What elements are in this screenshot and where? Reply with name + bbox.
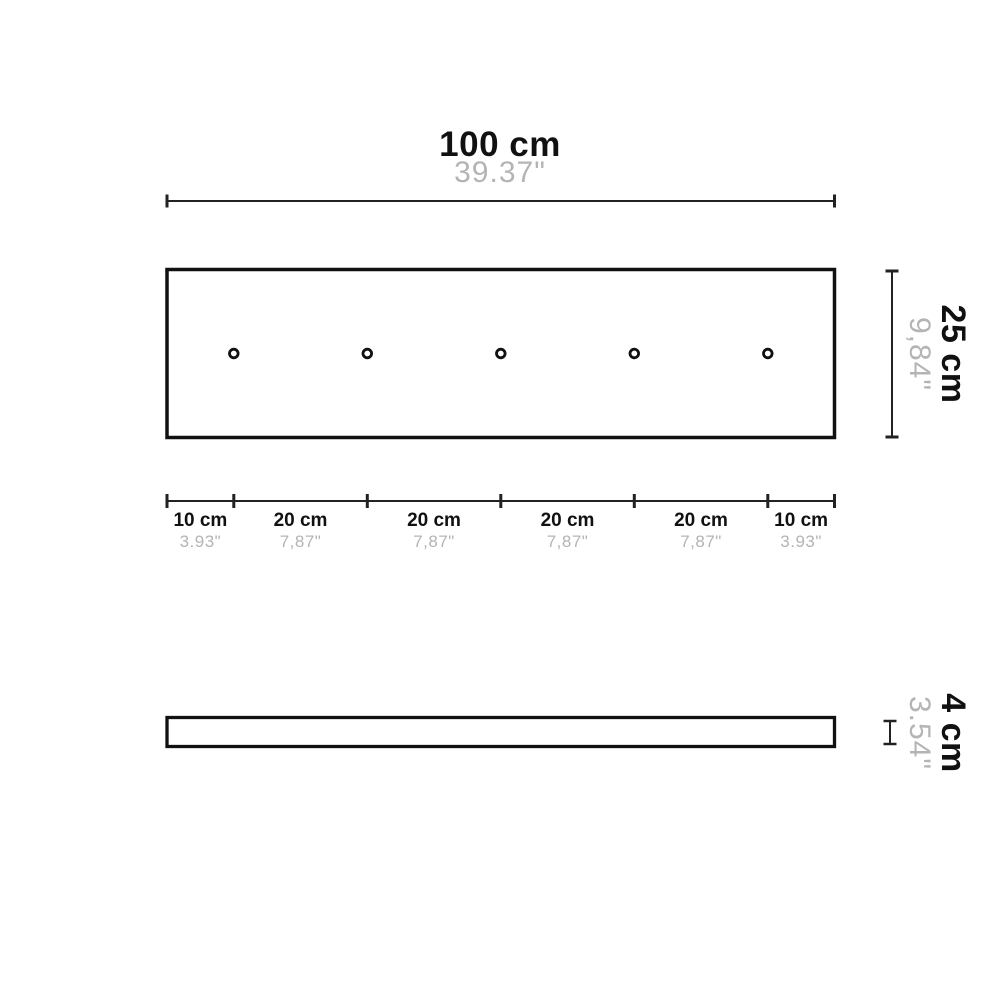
segment-value-label: 20 cm [241, 511, 361, 530]
segment-label: 20 cm7,87" [241, 511, 361, 550]
mounting-hole [363, 349, 372, 358]
segment-value-label: 20 cm [374, 511, 494, 530]
mounting-hole [230, 349, 239, 358]
side-view-plate [167, 718, 835, 747]
dimension-drawing: 100 cm 39.37" 25 cm 9,84" 10 cm3.93"20 c… [0, 0, 1000, 1000]
segment-label: 20 cm7,87" [374, 511, 494, 550]
height-label-block: 25 cm 9,84" [902, 269, 970, 439]
thickness-dimension [884, 721, 897, 744]
thickness-inches-label: 3.54" [903, 648, 935, 818]
segment-inches-label: 3.93" [741, 533, 861, 550]
thickness-label-block: 4 cm 3.54" [902, 648, 970, 818]
mounting-hole [497, 349, 506, 358]
mounting-hole [630, 349, 639, 358]
segment-inches-label: 7,87" [241, 533, 361, 550]
height-value-label: 25 cm [935, 269, 970, 439]
segment-value-label: 20 cm [508, 511, 628, 530]
width-inches-label: 39.37" [0, 158, 1000, 188]
height-dimension [886, 271, 899, 437]
height-inches-label: 9,84" [903, 269, 935, 439]
segment-inches-label: 7,87" [374, 533, 494, 550]
segment-value-label: 10 cm [741, 511, 861, 530]
bottom-segments-dimension [167, 494, 835, 508]
segment-label: 10 cm3.93" [741, 511, 861, 550]
thickness-value-label: 4 cm [935, 648, 970, 818]
mounting-hole [764, 349, 773, 358]
segment-inches-label: 7,87" [508, 533, 628, 550]
segment-label: 20 cm7,87" [508, 511, 628, 550]
top-width-dimension [167, 195, 835, 208]
